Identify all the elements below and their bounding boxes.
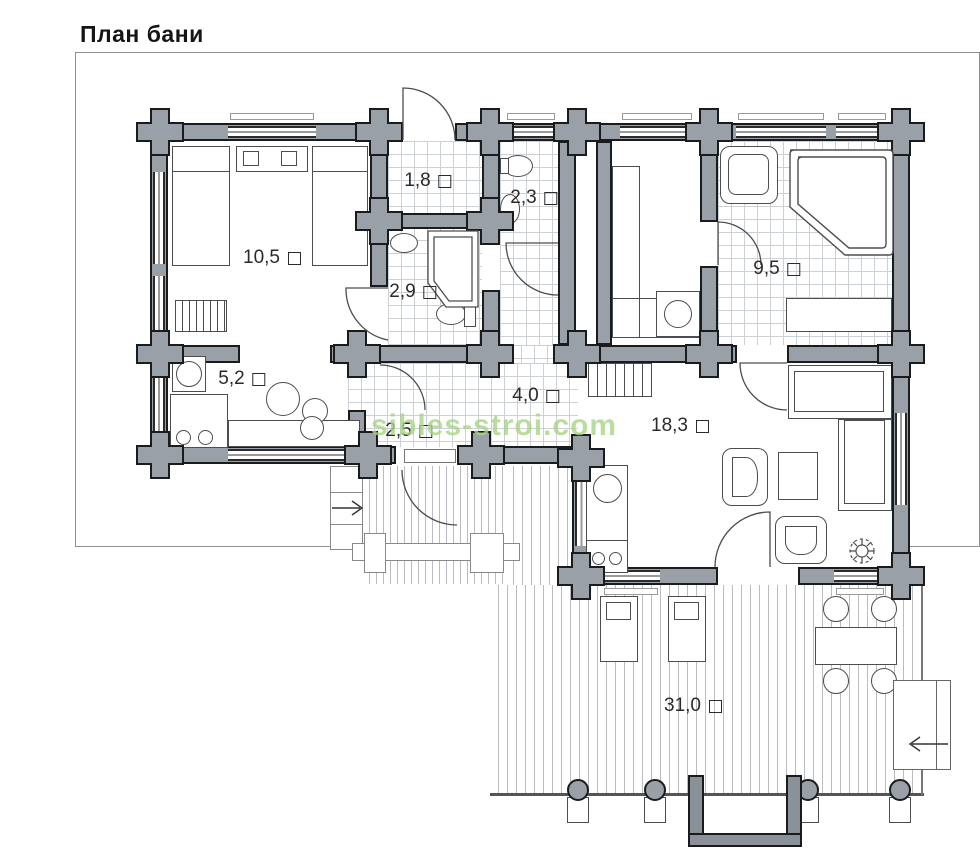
terrace-edge — [490, 793, 924, 796]
nightstand-detail — [281, 151, 297, 166]
room-area-value: 9,5 — [753, 258, 779, 280]
room-label-living-room: 18,3 — [651, 415, 709, 437]
window-sill — [230, 113, 314, 120]
window — [836, 126, 888, 138]
wall-exterior-bottom-left — [460, 446, 572, 464]
stove-burner — [592, 552, 605, 565]
stove-burner — [609, 552, 622, 565]
shower-tray-inner — [728, 154, 769, 195]
terrace-side-entry-step — [936, 680, 937, 770]
lounger-headrest — [674, 602, 699, 620]
sun-lounger — [668, 596, 706, 662]
porch-post-pad — [364, 533, 386, 573]
window-sill — [507, 113, 555, 120]
room-label-hallway: 4,0 — [512, 385, 559, 407]
porch-step-line — [330, 524, 363, 525]
window-sill — [838, 113, 886, 120]
wall-sauna-washing — [700, 141, 718, 222]
room-label-washing-room: 9,5 — [753, 258, 800, 280]
corner-sofa — [838, 419, 892, 511]
area-marker-icon — [788, 263, 801, 276]
kitchen-counter — [228, 420, 360, 447]
window — [895, 413, 907, 505]
bed-pillow-line — [173, 171, 229, 172]
counter-divider — [587, 540, 627, 541]
terrace-table — [815, 627, 897, 665]
wall-middle — [787, 345, 892, 363]
radiator — [175, 300, 227, 332]
room-area-value: 1,8 — [404, 170, 430, 192]
armchair-seat — [732, 457, 758, 497]
window — [620, 126, 694, 138]
page-title: План бани — [80, 21, 204, 48]
wall-wetblock-wc — [482, 141, 500, 240]
wall-wc-sauna — [558, 141, 576, 345]
floor-tiles-wc-doorway — [508, 345, 566, 363]
porch-step-line — [330, 492, 363, 493]
window — [228, 126, 316, 138]
nightstand-detail — [243, 151, 259, 166]
terrace-column — [644, 779, 666, 801]
area-marker-icon — [439, 175, 452, 188]
room-label-bedroom: 10,5 — [243, 247, 301, 269]
fridge — [172, 356, 206, 392]
terrace-column — [567, 779, 589, 801]
room-area-value: 31,0 — [664, 695, 701, 717]
window — [736, 126, 826, 138]
watermark: sibles-stroi.com — [371, 409, 617, 443]
room-area-value: 2,9 — [389, 281, 415, 303]
wall-sauna-left — [596, 141, 612, 345]
terrace-column — [889, 779, 911, 801]
window — [228, 449, 384, 461]
armchair — [722, 448, 768, 506]
armchair — [775, 516, 827, 564]
wall-wetblock-wc — [482, 290, 500, 363]
room-area-value: 10,5 — [243, 247, 280, 269]
stool — [823, 668, 849, 694]
room-label-terrace: 31,0 — [664, 695, 722, 717]
porch-post-pad — [470, 533, 504, 573]
window-sill — [738, 113, 824, 120]
window-sill — [622, 113, 692, 120]
window — [153, 172, 165, 264]
area-marker-icon — [253, 373, 266, 386]
armchair-seat — [785, 526, 817, 555]
area-marker-icon — [424, 286, 437, 299]
fridge-detail — [176, 361, 202, 387]
door-leaf — [404, 449, 456, 463]
room-area-value: 18,3 — [651, 415, 688, 437]
floor-plan-canvas: План бани — [0, 0, 980, 852]
sofa-cushion — [844, 420, 885, 504]
bench — [786, 298, 892, 332]
wall-tambour-shower — [370, 213, 500, 229]
lounger-headrest — [606, 602, 631, 620]
window-sill — [604, 588, 658, 595]
kitchenette-counter — [586, 465, 628, 573]
window — [153, 276, 165, 338]
room-label-wc: 2,3 — [510, 187, 557, 209]
wall-sauna-washing — [700, 266, 718, 363]
room-area-value: 4,0 — [512, 385, 538, 407]
sun-lounger — [600, 596, 638, 662]
stool — [823, 596, 849, 622]
sink-bowl — [176, 430, 191, 445]
area-marker-icon — [709, 700, 722, 713]
bed-pillow-line — [313, 171, 367, 172]
stairs — [588, 363, 652, 397]
sink-bowl — [593, 474, 622, 503]
area-marker-icon — [547, 390, 560, 403]
coffee-table — [778, 452, 818, 500]
sauna-stove-detail — [664, 300, 692, 328]
toilet-tank — [500, 158, 509, 174]
toilet-bowl — [436, 303, 466, 325]
kitchen-chair — [300, 416, 324, 440]
terrace-side-entry — [893, 680, 951, 770]
room-label-kitchen: 5,2 — [218, 368, 265, 390]
room-area-value: 5,2 — [218, 368, 244, 390]
porch-steps — [330, 466, 363, 550]
nightstand — [236, 146, 308, 172]
window — [505, 126, 557, 138]
room-label-shower-room: 2,9 — [389, 281, 436, 303]
wall-exterior-right — [892, 123, 910, 585]
area-marker-icon — [545, 192, 558, 205]
area-marker-icon — [696, 420, 709, 433]
sofa-cushion — [794, 371, 884, 412]
area-marker-icon — [288, 252, 301, 265]
terrace-steps — [688, 833, 802, 847]
corner-sofa — [788, 365, 892, 419]
toilet-tank — [464, 301, 476, 327]
kitchen-table — [266, 382, 300, 416]
window — [834, 570, 886, 582]
shower-tray — [720, 146, 778, 204]
stool — [871, 596, 897, 622]
bed — [312, 146, 368, 266]
bed — [172, 146, 230, 266]
terrace-decking — [490, 585, 924, 795]
sauna-stove — [656, 291, 700, 337]
washbasin — [390, 233, 418, 253]
window — [153, 366, 165, 436]
room-label-entry-tambour: 1,8 — [404, 170, 451, 192]
sink-bowl — [198, 430, 213, 445]
room-area-value: 2,3 — [510, 187, 536, 209]
window-sill — [836, 588, 884, 595]
